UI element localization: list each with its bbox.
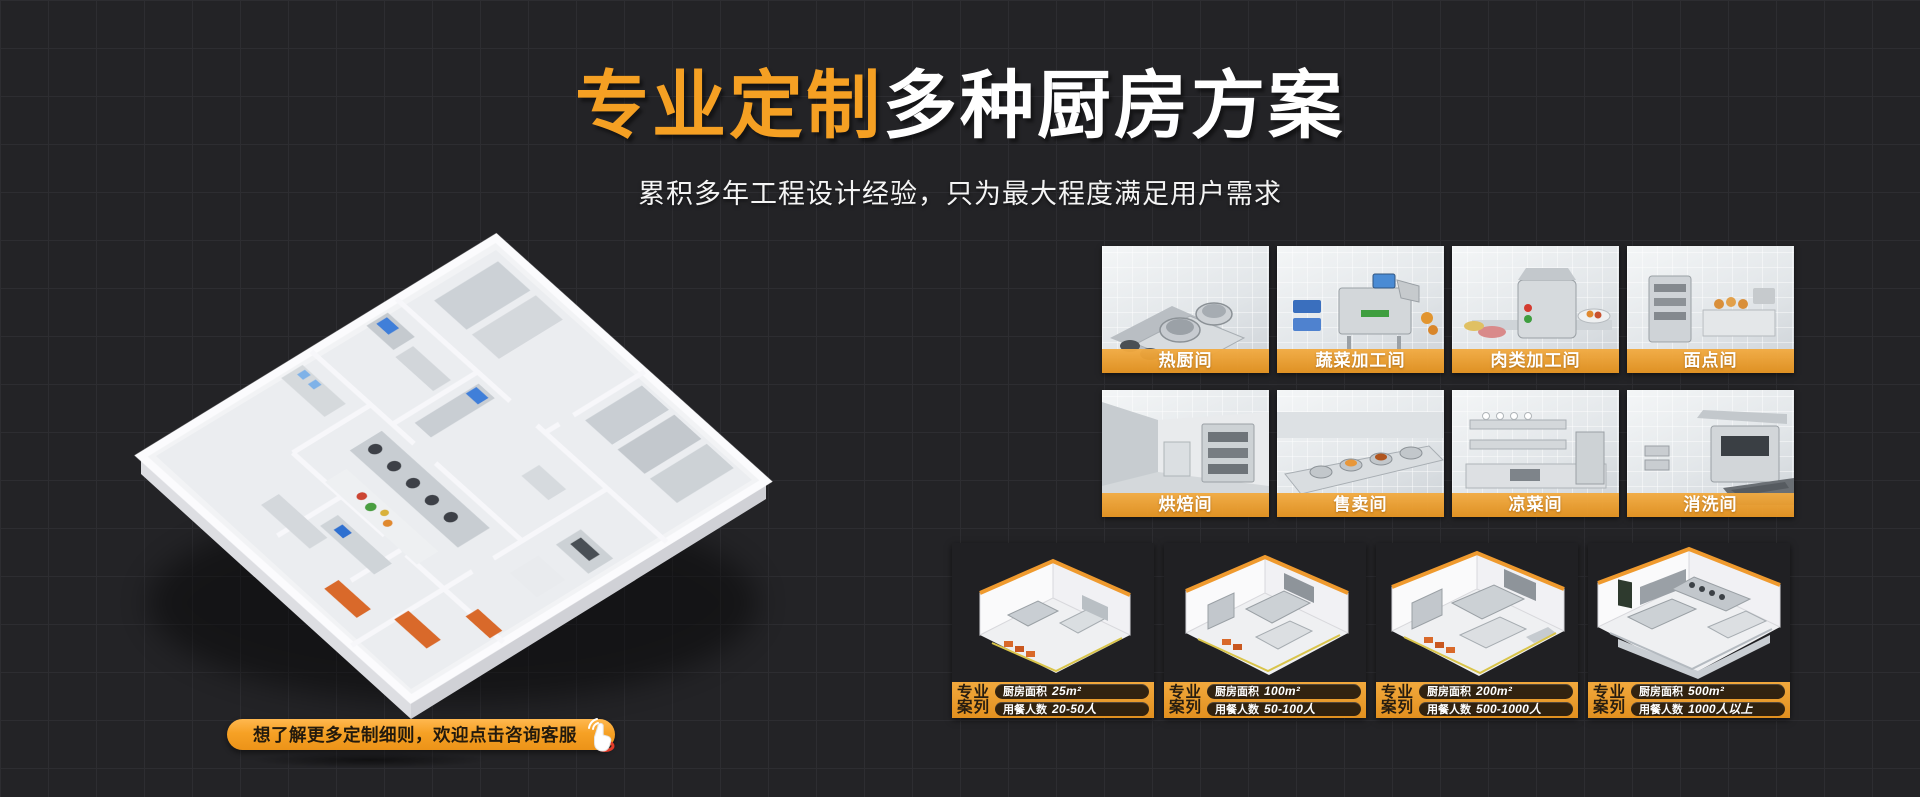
title-rest: 多种厨房方案 [883, 64, 1345, 147]
diners-value: 50-100人 [1264, 702, 1315, 717]
case-tag-line1: 专业 [1381, 685, 1414, 701]
room-tile-sales: 售卖间 [1277, 390, 1444, 517]
diners-value: 1000人以上 [1688, 702, 1753, 717]
area-pill: 厨房面积100m² [1207, 684, 1361, 699]
room-tile-meat-processing: 肉类加工间 [1452, 246, 1619, 373]
area-label: 厨房面积 [1639, 685, 1683, 700]
case-tag: 专业 案列 [1593, 685, 1626, 716]
area-pill: 厨房面积25m² [995, 684, 1149, 699]
area-value: 25m² [1052, 684, 1081, 699]
room-gallery: 热厨间 蔬菜加工间 [1102, 246, 1794, 517]
case-stats: 厨房面积500m² 用餐人数1000人以上 [1631, 684, 1785, 716]
case-tag: 专业 案列 [1381, 685, 1414, 716]
case-tag: 专业 案列 [957, 685, 990, 716]
consult-button[interactable]: 想了解更多定制细则，欢迎点击咨询客服 [227, 719, 615, 750]
area-label: 厨房面积 [1215, 685, 1259, 700]
page-title: 专业定制多种厨房方案 [0, 66, 1920, 146]
kitchen-solutions-banner: 专业定制多种厨房方案 累积多年工程设计经验，只为最大程度满足用户需求 [0, 0, 1920, 797]
diners-pill: 用餐人数1000人以上 [1631, 702, 1785, 717]
room-label: 蔬菜加工间 [1277, 349, 1444, 373]
case-card-200: 专业 案列 厨房面积200m² 用餐人数500-1000人 [1376, 543, 1578, 718]
room-label: 消洗间 [1627, 493, 1794, 517]
room-tile-vegetable-processing: 蔬菜加工间 [1277, 246, 1444, 373]
case-footer: 专业 案列 厨房面积200m² 用餐人数500-1000人 [1376, 682, 1578, 718]
case-stats: 厨房面积200m² 用餐人数500-1000人 [1419, 684, 1573, 716]
area-value: 500m² [1688, 684, 1724, 699]
case-image-200 [1376, 543, 1578, 682]
case-tag-line2: 案列 [1169, 700, 1202, 716]
room-label: 肉类加工间 [1452, 349, 1619, 373]
diners-pill: 用餐人数50-100人 [1207, 702, 1361, 717]
diners-value: 20-50人 [1052, 702, 1097, 717]
room-tile-baking: 烘焙间 [1102, 390, 1269, 517]
consult-button-label: 想了解更多定制细则，欢迎点击咨询客服 [253, 722, 577, 747]
case-tag-line1: 专业 [1169, 685, 1202, 701]
diners-label: 用餐人数 [1215, 703, 1259, 718]
case-image-500 [1588, 543, 1790, 682]
case-card-500: 专业 案列 厨房面积500m² 用餐人数1000人以上 [1588, 543, 1790, 718]
room-label: 面点间 [1627, 349, 1794, 373]
area-label: 厨房面积 [1003, 685, 1047, 700]
floorplan-svg [118, 208, 794, 720]
case-image-25 [952, 543, 1154, 682]
case-card-100: 专业 案列 厨房面积100m² 用餐人数50-100人 [1164, 543, 1366, 718]
case-tag-line2: 案列 [1381, 700, 1414, 716]
diners-value: 500-1000人 [1476, 702, 1541, 717]
case-tag-line2: 案列 [957, 700, 990, 716]
diners-pill: 用餐人数20-50人 [995, 702, 1149, 717]
cta-reflection [250, 752, 490, 768]
case-tag-line1: 专业 [957, 685, 990, 701]
room-tile-dishwashing: 消洗间 [1627, 390, 1794, 517]
click-hand-icon [581, 716, 619, 754]
case-tag-line2: 案列 [1593, 700, 1626, 716]
diners-label: 用餐人数 [1003, 703, 1047, 718]
case-stats: 厨房面积25m² 用餐人数20-50人 [995, 684, 1149, 716]
area-pill: 厨房面积500m² [1631, 684, 1785, 699]
kitchen-floorplan-illustration [118, 208, 794, 720]
room-label: 热厨间 [1102, 349, 1269, 373]
case-tag: 专业 案列 [1169, 685, 1202, 716]
room-label: 售卖间 [1277, 493, 1444, 517]
diners-label: 用餐人数 [1639, 703, 1683, 718]
case-tag-line1: 专业 [1593, 685, 1626, 701]
room-tile-pastry: 面点间 [1627, 246, 1794, 373]
room-tile-hot-kitchen: 热厨间 [1102, 246, 1269, 373]
diners-pill: 用餐人数500-1000人 [1419, 702, 1573, 717]
room-label: 烘焙间 [1102, 493, 1269, 517]
case-gallery: 专业 案列 厨房面积25m² 用餐人数20-50人 [952, 543, 1790, 718]
case-footer: 专业 案列 厨房面积100m² 用餐人数50-100人 [1164, 682, 1366, 718]
area-pill: 厨房面积200m² [1419, 684, 1573, 699]
case-stats: 厨房面积100m² 用餐人数50-100人 [1207, 684, 1361, 716]
case-footer: 专业 案列 厨房面积500m² 用餐人数1000人以上 [1588, 682, 1790, 718]
area-label: 厨房面积 [1427, 685, 1471, 700]
room-label: 凉菜间 [1452, 493, 1619, 517]
room-tile-cold-dish: 凉菜间 [1452, 390, 1619, 517]
case-image-100 [1164, 543, 1366, 682]
page-subtitle: 累积多年工程设计经验，只为最大程度满足用户需求 [0, 172, 1920, 211]
case-card-25: 专业 案列 厨房面积25m² 用餐人数20-50人 [952, 543, 1154, 718]
case-footer: 专业 案列 厨房面积25m² 用餐人数20-50人 [952, 682, 1154, 718]
area-value: 100m² [1264, 684, 1300, 699]
title-highlight: 专业定制 [575, 64, 883, 147]
area-value: 200m² [1476, 684, 1512, 699]
diners-label: 用餐人数 [1427, 703, 1471, 718]
